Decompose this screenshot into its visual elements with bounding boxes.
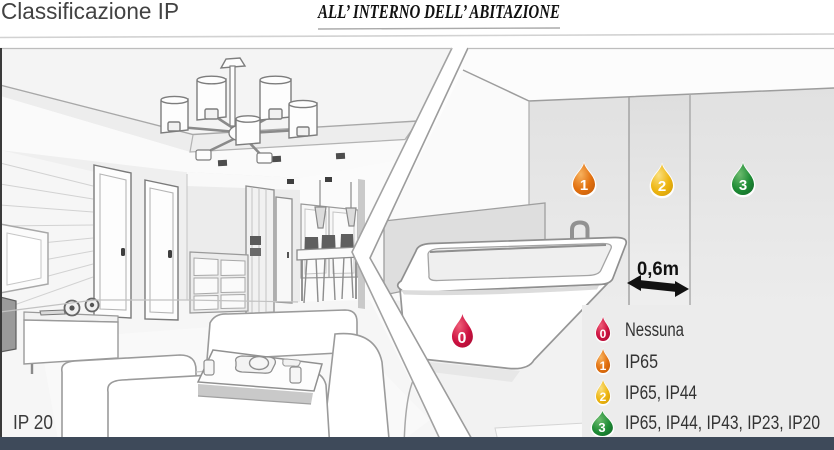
- svg-text:IP65, IP44, IP43, IP23, IP20: IP65, IP44, IP43, IP23, IP20: [625, 413, 820, 434]
- svg-text:3: 3: [598, 420, 605, 435]
- svg-text:1: 1: [580, 177, 588, 194]
- svg-text:0: 0: [600, 327, 607, 341]
- svg-text:2: 2: [600, 390, 607, 404]
- svg-text:Classificazione IP: Classificazione IP: [1, 0, 179, 24]
- svg-text:0: 0: [458, 330, 467, 347]
- svg-text:IP65: IP65: [625, 352, 658, 373]
- svg-text:IP65, IP44: IP65, IP44: [625, 383, 697, 404]
- svg-text:IP 20: IP 20: [13, 412, 53, 434]
- svg-text:0,6m: 0,6m: [637, 259, 679, 280]
- svg-text:1: 1: [600, 359, 607, 373]
- svg-text:Nessuna: Nessuna: [625, 320, 684, 341]
- svg-text:3: 3: [739, 177, 747, 194]
- svg-text:ALL’ INTERNO DELL’ ABITAZIONE: ALL’ INTERNO DELL’ ABITAZIONE: [317, 1, 560, 23]
- svg-text:2: 2: [658, 178, 666, 195]
